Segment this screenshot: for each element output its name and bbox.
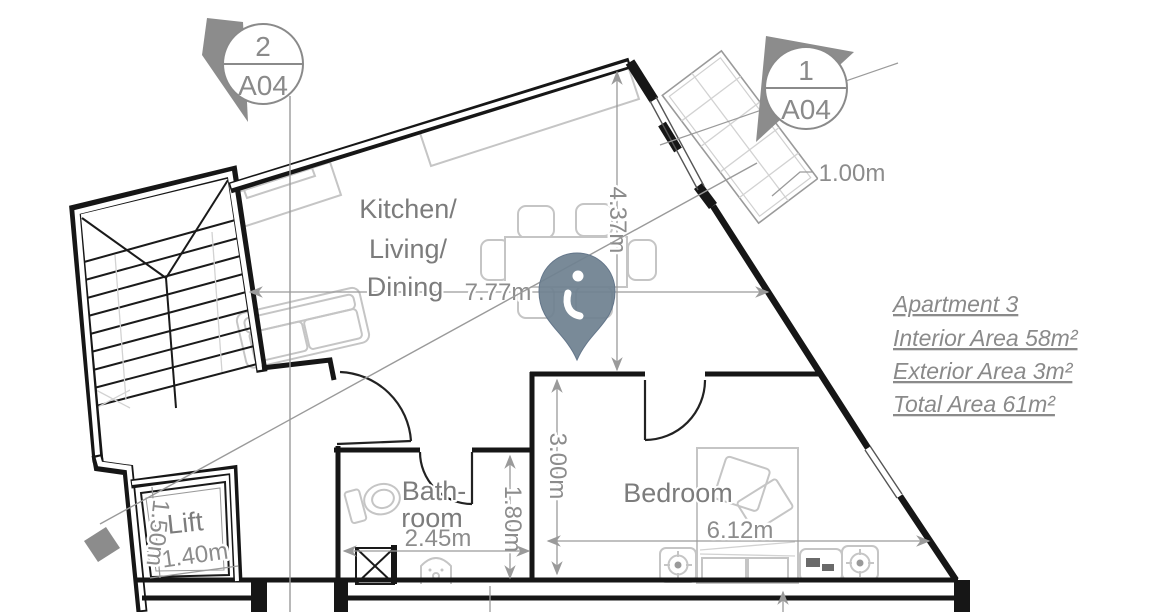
dim-bedroom-height: 3.00m xyxy=(544,433,571,500)
dim-living-height: 4.37m xyxy=(604,187,631,254)
label-bedroom: Bedroom xyxy=(623,478,733,508)
toilet-icon xyxy=(344,479,403,524)
light-symbol-icon xyxy=(664,551,692,579)
apartment-total-area: Total Area 61m² xyxy=(893,391,1056,417)
marker1-number: 1 xyxy=(798,55,814,86)
apartment-exterior-area: Exterior Area 3m² xyxy=(893,358,1074,384)
marker1-sheet: A04 xyxy=(781,94,831,125)
apartment-title: Apartment 3 xyxy=(891,291,1018,317)
apartment-info: Apartment 3 Interior Area 58m² Exterior … xyxy=(891,291,1079,417)
dim-bathroom-height: 1.80m xyxy=(499,486,526,553)
section-cut-mark xyxy=(84,527,120,562)
chair-icon xyxy=(518,206,554,238)
window-glass xyxy=(865,450,897,498)
dim-balcony-depth: 1.00m xyxy=(819,160,886,187)
light-symbol-icon xyxy=(846,549,874,577)
dim-bedroom-width: 6.12m xyxy=(707,517,774,544)
floor-plan: 7.77m 4.37m 3.00m 1.80m 2.45m 6.12m 1.50… xyxy=(0,0,1155,612)
marker2-number: 2 xyxy=(255,31,271,62)
bed-icon xyxy=(697,448,798,583)
location-pin-icon[interactable] xyxy=(539,253,615,360)
apartment-interior-area: Interior Area 58m² xyxy=(893,325,1079,351)
entrance-door xyxy=(337,372,411,444)
label-bathroom-line2: room xyxy=(401,503,463,533)
marker2-sheet: A04 xyxy=(238,70,288,101)
label-kitchen-line2: Living/ xyxy=(369,234,448,264)
section-marker-1: 1 A04 xyxy=(756,36,854,142)
chair-icon xyxy=(628,240,656,280)
label-bathroom-line1: Bath- xyxy=(402,476,467,506)
label-kitchen-line3: Dining xyxy=(367,272,444,302)
label-lift: Lift xyxy=(166,506,205,540)
label-kitchen-line1: Kitchen/ xyxy=(359,194,457,224)
section-marker-2: 2 A04 xyxy=(202,18,303,122)
nightstand xyxy=(842,546,878,580)
bedside-unit xyxy=(800,549,842,581)
bedroom-door xyxy=(645,380,705,440)
nightstand xyxy=(660,548,696,582)
